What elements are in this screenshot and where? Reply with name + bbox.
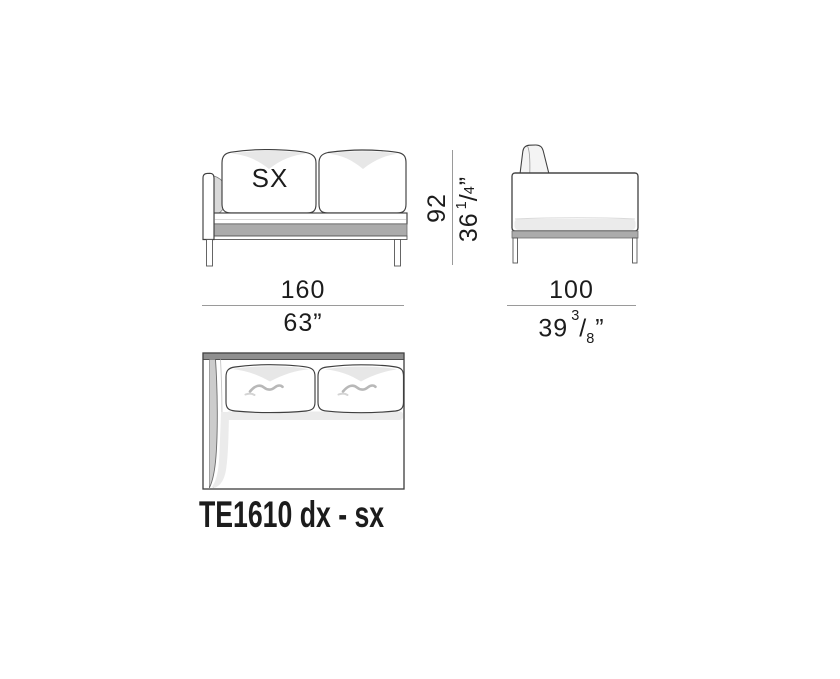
side-legs (513, 238, 637, 263)
side-backrest-pillow (520, 145, 549, 174)
side-view-drawing (505, 138, 645, 266)
height-in-whole: 36 (455, 212, 483, 242)
width-dimension-cm: 160 (202, 276, 404, 304)
depth-in-denominator: 8 (586, 331, 594, 347)
front-view-drawing (200, 122, 412, 272)
product-code: TE1610 dx - sx (199, 496, 384, 534)
height-dimension-inches: 361/4” (455, 153, 483, 265)
depth-in-unit: ” (595, 314, 604, 342)
front-legs (207, 240, 401, 267)
top-back-cushion-left (226, 365, 315, 413)
front-armrest-panel (203, 173, 214, 239)
depth-in-numerator: 3 (571, 308, 579, 324)
width-dimension-line (202, 305, 404, 306)
depth-dimension-cm: 100 (507, 276, 636, 304)
side-base-band (512, 231, 638, 238)
height-in-unit: ” (455, 176, 483, 185)
front-back-cushion-right (319, 150, 406, 213)
depth-dimension-inches: 393/8” (507, 309, 636, 337)
height-in-denominator: 4 (456, 186, 484, 194)
top-view-drawing (200, 348, 408, 492)
orientation-label: SX (244, 164, 296, 192)
top-back-cushion-right (318, 365, 404, 413)
depth-dimension-line (507, 305, 636, 306)
height-dimension-cm: 92 (423, 178, 451, 238)
sofa-spec-sheet: SX 92 361/4” 160 63” 100 393/8” (0, 0, 840, 679)
depth-in-whole: 39 (538, 314, 568, 342)
height-in-slash: / (455, 194, 483, 201)
width-dimension-inches: 63” (202, 309, 404, 337)
side-body (512, 173, 638, 231)
height-in-numerator: 1 (448, 201, 476, 209)
front-seat-frame (214, 213, 407, 240)
top-back-rail (203, 353, 404, 360)
